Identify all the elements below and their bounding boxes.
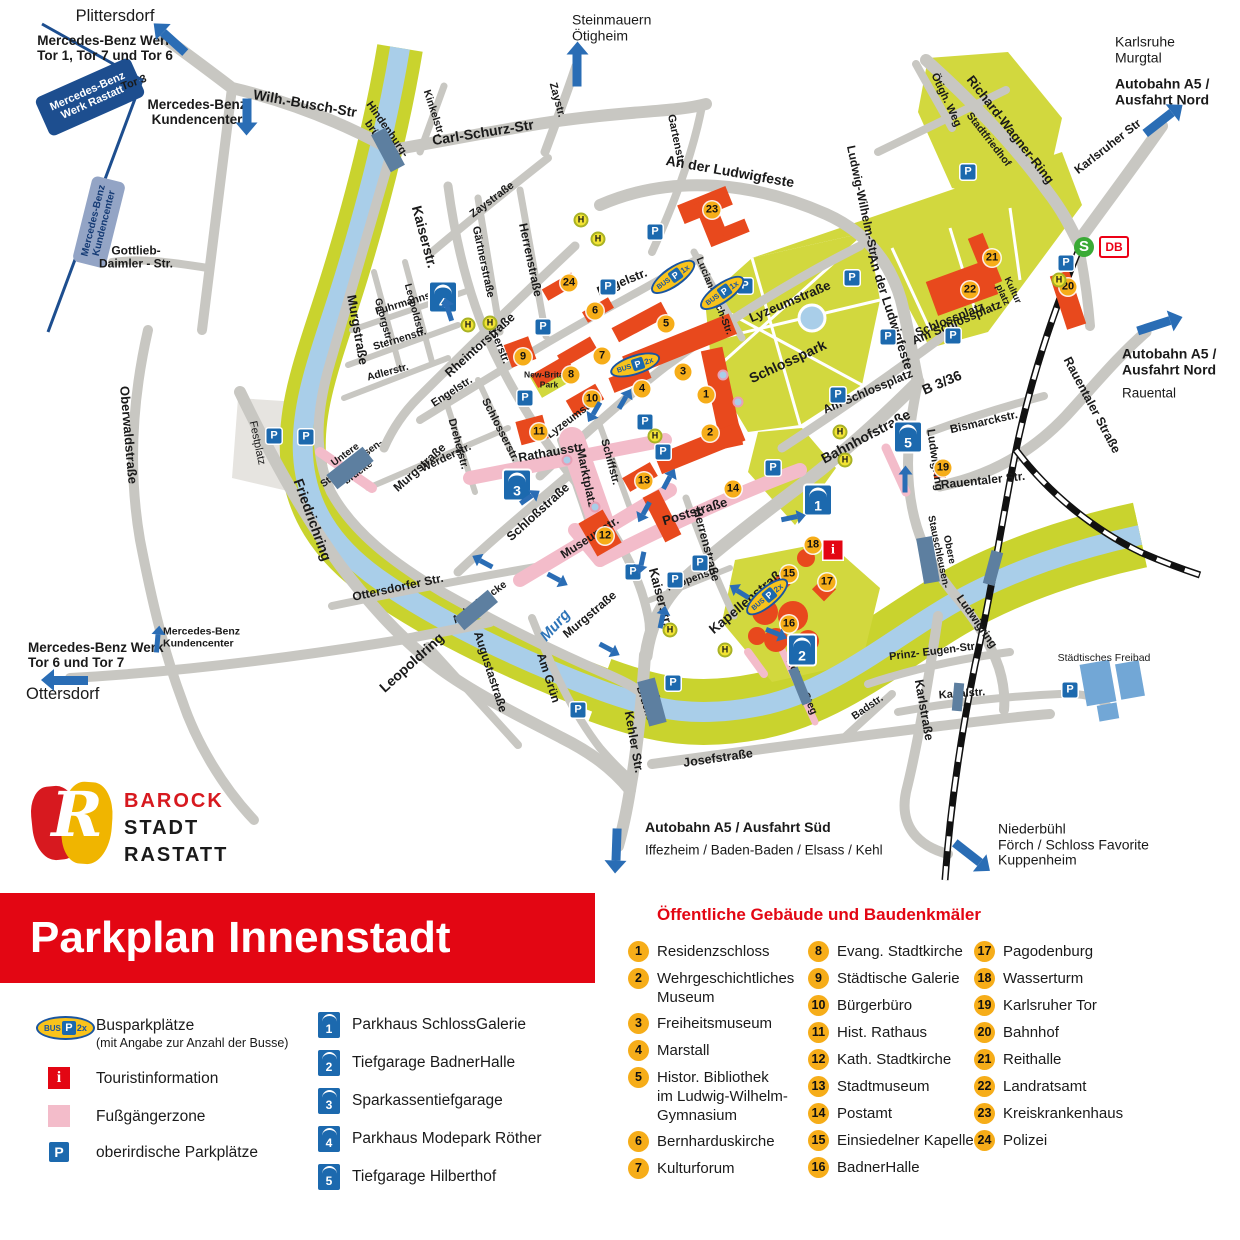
- building-label: Bahnhof: [1003, 1022, 1059, 1042]
- surface-parking-icon: P: [49, 1142, 69, 1162]
- rastatt-emblem-icon: R: [32, 782, 114, 864]
- parkhaus-legend-list: 1Parkhaus SchlossGalerie2Tiefgarage Badn…: [318, 1008, 542, 1198]
- bus-stop-icon: H: [838, 453, 853, 468]
- building-legend-item: 24Polizei: [974, 1130, 1184, 1151]
- building-number-badge: 2: [628, 968, 649, 989]
- bus-stop-icon: H: [461, 318, 476, 333]
- legend-parking-label: oberirdische Parkplätze: [96, 1144, 258, 1162]
- parking-icon: P: [946, 329, 961, 344]
- pedestrian-zone-swatch: [48, 1105, 70, 1127]
- street-label: Gärtnerstraße: [469, 225, 496, 299]
- parkhaus-marker: 5: [895, 423, 921, 452]
- building-number-badge: 3: [628, 1013, 649, 1034]
- building-label: Wasserturm: [1003, 968, 1083, 988]
- bus-stop-icon: H: [591, 232, 606, 247]
- building-label: Marstall: [657, 1040, 710, 1060]
- building-label: Bürgerbüro: [837, 995, 912, 1015]
- street-label: Kaiserstr.: [408, 204, 440, 270]
- building-legend-item: 13Stadtmuseum: [808, 1076, 978, 1097]
- page-title: Parkplan Innenstadt: [0, 893, 595, 983]
- direction-arrow: [641, 500, 652, 515]
- bus-text: BUS: [616, 363, 632, 374]
- poi-badge: 9: [515, 349, 532, 366]
- building-number-badge: 11: [808, 1022, 829, 1043]
- parking-icon: P: [1059, 256, 1074, 271]
- bus-stop-icon: H: [483, 316, 498, 331]
- street-label: B 3/36: [920, 368, 964, 399]
- street-label: Karlsruher Str: [1072, 117, 1144, 177]
- direction-arrow: [639, 551, 647, 566]
- building-number-badge: 21: [974, 1049, 995, 1070]
- title-bar: Parkplan Innenstadt: [0, 893, 595, 983]
- building-legend-item: 5Histor. Bibliothek im Ludwig-Wilhelm- G…: [628, 1067, 833, 1125]
- street-label: Zaystr.: [546, 81, 567, 118]
- parkhaus-icon: 5: [318, 1164, 340, 1190]
- direction-arrow: [765, 626, 780, 636]
- legend-info-label: Touristinformation: [96, 1070, 218, 1088]
- building-legend-item: 7Kulturforum: [628, 1158, 833, 1179]
- building-label: Bernharduskirche: [657, 1131, 775, 1151]
- building-label: Kulturforum: [657, 1158, 735, 1178]
- destination-label: Rauental: [1122, 385, 1176, 400]
- barock-stadt-rastatt-logo: R BAROCK STADT RASTATT: [32, 782, 312, 874]
- parking-icon: P: [267, 429, 282, 444]
- building-number-badge: 18: [974, 968, 995, 989]
- parkhaus-number: 5: [326, 1174, 333, 1188]
- legend-ped-label: Fußgängerzone: [96, 1108, 205, 1126]
- db-logo: DB: [1099, 236, 1129, 258]
- building-number-badge: 13: [808, 1076, 829, 1097]
- bus-parking-icon: BUS P 2x: [36, 1016, 95, 1040]
- destination-label: Karlsruhe Murgtal: [1115, 34, 1175, 65]
- street-label: Zaystraße: [468, 179, 517, 220]
- count-text: 2x: [643, 355, 654, 366]
- parking-icon: P: [766, 461, 781, 476]
- logo-line-barock: BAROCK: [124, 790, 224, 813]
- poi-badge: 7: [594, 348, 611, 365]
- parkhaus-number: 3: [326, 1098, 333, 1112]
- parkhaus-number: 4: [326, 1136, 333, 1150]
- street-label: Prinz- Eugen-Str: [888, 641, 975, 664]
- poi-badge: 1: [698, 387, 715, 404]
- building-legend-item: 14Postamt: [808, 1103, 978, 1124]
- building-number-badge: 15: [808, 1130, 829, 1151]
- buildings-column-1: 1Residenzschloss2Wehrgeschichtliches Mus…: [628, 941, 833, 1185]
- parkhaus-roof-icon: [899, 425, 917, 435]
- city-map: Mercedes-Benz Werk Rastatt Mercedes-Benz…: [0, 0, 1240, 890]
- parkhaus-roof-icon: [434, 285, 452, 295]
- bus-stop-icon: H: [833, 425, 848, 440]
- logo-line-rastatt: RASTATT: [124, 844, 228, 867]
- street-label: Augustastraße: [471, 630, 510, 714]
- parking-icon: P: [666, 676, 681, 691]
- parkhaus-label: Parkhaus SchlossGalerie: [352, 1016, 526, 1034]
- building-legend-item: 15Einsiedelner Kapelle: [808, 1130, 978, 1151]
- poi-badge: 24: [561, 275, 578, 292]
- poi-badge: 13: [636, 473, 653, 490]
- building-legend-item: 19Karlsruher Tor: [974, 995, 1184, 1016]
- parkhaus-label: Tiefgarage Hilberthof: [352, 1168, 496, 1186]
- destination-label: Plittersdorf: [76, 7, 155, 25]
- building-number-badge: 10: [808, 995, 829, 1016]
- street-label: Ludwig-Wilhelm-Str.: [843, 144, 880, 259]
- legend-bus-sublabel: (mit Angabe zur Anzahl der Busse): [96, 1036, 288, 1050]
- parking-icon: P: [648, 225, 663, 240]
- building-number-badge: 22: [974, 1076, 995, 1097]
- building-legend-item: 18Wasserturm: [974, 968, 1184, 989]
- building-legend-item: 1Residenzschloss: [628, 941, 833, 962]
- destination-label: Iffezheim / Baden-Baden / Elsass / Kehl: [645, 842, 883, 857]
- building-number-badge: 20: [974, 1022, 995, 1043]
- building-label: Karlsruher Tor: [1003, 995, 1097, 1015]
- parkhaus-label: Sparkassentiefgarage: [352, 1092, 503, 1110]
- building-legend-item: 3Freiheitsmuseum: [628, 1013, 833, 1034]
- building-label: Postamt: [837, 1103, 892, 1123]
- direction-arrow: [573, 54, 582, 86]
- street-label: Am Grün: [534, 652, 563, 705]
- building-legend-item: 12Kath. Stadtkirche: [808, 1049, 978, 1070]
- destination-label: Autobahn A5 / Ausfahrt Süd: [645, 820, 831, 836]
- street-label: Lyzeumstraße: [747, 278, 833, 325]
- poi-badge: 14: [725, 481, 742, 498]
- poi-badge: 12: [597, 528, 614, 545]
- street-label: Rauentaler Straße: [1061, 354, 1124, 455]
- parkhaus-roof-icon: [322, 1052, 337, 1060]
- street-label: An der Ludwigfeste: [665, 153, 796, 191]
- street-label: Ottersdorfer Str.: [351, 572, 444, 604]
- parkhaus-roof-icon: [322, 1090, 337, 1098]
- building-label: Polizei: [1003, 1130, 1047, 1150]
- building-legend-item: 17Pagodenburg: [974, 941, 1184, 962]
- street-label: Marktplatz: [573, 448, 598, 509]
- bus-oval-bus-text: BUS: [44, 1024, 61, 1033]
- parking-icon: P: [831, 388, 846, 403]
- parking-icon: P: [693, 556, 708, 571]
- direction-arrow: [598, 641, 613, 652]
- bus-parking-icon: BUSP2x: [607, 348, 662, 383]
- destination-label: Niederbühl Förch / Schloss Favorite Kupp…: [998, 821, 1149, 868]
- building-label: Residenzschloss: [657, 941, 770, 961]
- poi-badge: 19: [935, 460, 952, 477]
- street-label: Leopoldring: [377, 630, 448, 696]
- bus-stop-icon: H: [574, 213, 589, 228]
- bus-text: BUS: [656, 276, 672, 290]
- building-legend-item: 2Wehrgeschichtliches Museum: [628, 968, 833, 1007]
- destination-label: Autobahn A5 / Ausfahrt Nord: [1115, 76, 1209, 107]
- direction-arrow: [546, 571, 561, 582]
- parkhaus-icon: 1: [318, 1012, 340, 1038]
- building-legend-item: 22Landratsamt: [974, 1076, 1184, 1097]
- destination-label: Mercedes-Benz Kundencenter: [147, 97, 246, 127]
- parkhaus-number: 5: [904, 435, 912, 451]
- poi-badge: 23: [704, 202, 721, 219]
- parkhaus-number: 3: [513, 483, 521, 499]
- building-number-badge: 5: [628, 1067, 649, 1088]
- area-label: Schlosspark: [747, 337, 829, 386]
- bus-oval-count-text: 2x: [77, 1023, 87, 1033]
- poi-badge: 21: [984, 250, 1001, 267]
- parkhaus-icon: 4: [318, 1126, 340, 1152]
- parkhaus-roof-icon: [793, 638, 811, 648]
- building-label: Einsiedelner Kapelle: [837, 1130, 974, 1150]
- bus-stop-icon: H: [663, 623, 678, 638]
- fountain-dot: [590, 502, 601, 513]
- street-label: Kinkelstr.: [420, 89, 446, 138]
- bus-stop-icon: H: [1052, 273, 1067, 288]
- bus-oval-p-icon: P: [62, 1021, 76, 1035]
- parking-icon: P: [638, 415, 653, 430]
- building-legend-item: 21Reithalle: [974, 1049, 1184, 1070]
- direction-arrow: [1136, 316, 1171, 335]
- street-label: Ötigh. Weg: [928, 71, 964, 129]
- parkhaus-roof-icon: [322, 1166, 337, 1174]
- map-overlay: Mercedes-Benz Werk Rastatt Mercedes-Benz…: [0, 0, 1240, 890]
- poi-badge: 18: [805, 537, 822, 554]
- bus-text: BUS: [705, 292, 721, 306]
- street-label: Schlosserstr.: [479, 396, 521, 463]
- mercedes-werk-box: Mercedes-Benz Werk Rastatt: [34, 57, 146, 138]
- bus-text: BUS: [750, 597, 766, 612]
- parkhaus-number: 2: [326, 1060, 333, 1074]
- street-label: Karlstraße: [912, 678, 937, 741]
- buildings-column-2: 8Evang. Stadtkirche9Städtische Galerie10…: [808, 941, 978, 1184]
- building-number-badge: 23: [974, 1103, 995, 1124]
- building-legend-item: 16BadnerHalle: [808, 1157, 978, 1178]
- fountain-dot: [718, 370, 729, 381]
- building-number-badge: 4: [628, 1040, 649, 1061]
- poi-badge: 22: [962, 282, 979, 299]
- street-label: Bismarckstr.: [949, 409, 1019, 437]
- parkhaus-roof-icon: [322, 1014, 337, 1022]
- building-number-badge: 16: [808, 1157, 829, 1178]
- building-number-badge: 17: [974, 941, 995, 962]
- building-number-badge: 6: [628, 1131, 649, 1152]
- buildings-legend-title: Öffentliche Gebäude und Baudenkmäler: [657, 905, 981, 925]
- bridge: [983, 550, 1003, 586]
- building-number-badge: 7: [628, 1158, 649, 1179]
- building-number-badge: 14: [808, 1103, 829, 1124]
- building-label: Evang. Stadtkirche: [837, 941, 963, 961]
- building-number-badge: 24: [974, 1130, 995, 1151]
- poi-badge: 4: [634, 381, 651, 398]
- building-label: Wehrgeschichtliches Museum: [657, 968, 794, 1007]
- building-number-badge: 1: [628, 941, 649, 962]
- direction-arrow: [903, 474, 908, 492]
- parkhaus-legend-item: 1Parkhaus SchlossGalerie: [318, 1008, 542, 1041]
- parking-icon: P: [1063, 683, 1078, 698]
- parking-icon: P: [299, 430, 314, 445]
- building-label: Landratsamt: [1003, 1076, 1086, 1096]
- destination-label: Ottersdorf: [26, 685, 99, 703]
- parkplan-poster: Mercedes-Benz Werk Rastatt Mercedes-Benz…: [0, 0, 1240, 1240]
- building-legend-item: 6Bernharduskirche: [628, 1131, 833, 1152]
- destination-label: Autobahn A5 / Ausfahrt Nord: [1122, 346, 1216, 377]
- area-label: Festplatz: [246, 420, 267, 466]
- building-label: Reithalle: [1003, 1049, 1061, 1069]
- building-number-badge: 12: [808, 1049, 829, 1070]
- street-label: Wilh.-Busch-Str: [252, 87, 358, 121]
- direction-arrow: [661, 475, 672, 490]
- poi-badge: 11: [531, 424, 548, 441]
- parkhaus-label: Tiefgarage BadnerHalle: [352, 1054, 515, 1072]
- bus-stop-icon: H: [718, 643, 733, 658]
- street-label: Murgstraße: [344, 294, 371, 366]
- building-label: Histor. Bibliothek im Ludwig-Wilhelm- Gy…: [657, 1067, 788, 1125]
- street-label: An der Ludwigfeste: [864, 252, 915, 371]
- parking-icon: P: [668, 573, 683, 588]
- building-number-badge: 8: [808, 941, 829, 962]
- parking-icon: P: [881, 330, 896, 345]
- parking-icon: P: [601, 280, 616, 295]
- parking-icon: P: [518, 391, 533, 406]
- parkhaus-roof-icon: [322, 1128, 337, 1136]
- destination-label: Städtisches Freibad: [1058, 653, 1151, 665]
- parkhaus-marker: 2: [789, 636, 815, 665]
- building-label: Freiheitsmuseum: [657, 1013, 772, 1033]
- building-legend-item: 11Hist. Rathaus: [808, 1022, 978, 1043]
- parking-icon: P: [536, 320, 551, 335]
- poi-badge: 2: [702, 425, 719, 442]
- building-label: Hist. Rathaus: [837, 1022, 927, 1042]
- direction-arrow: [612, 828, 622, 860]
- logo-line-stadt: STADT: [124, 817, 199, 840]
- direction-arrow: [952, 839, 983, 866]
- bus-parking-icon: BUSP1x: [646, 254, 700, 300]
- building-legend-item: 9Städtische Galerie: [808, 968, 978, 989]
- direction-arrow: [781, 514, 798, 522]
- parkhaus-roof-icon: [809, 488, 827, 498]
- parking-icon: P: [961, 165, 976, 180]
- fountain-dot: [562, 455, 573, 466]
- parkhaus-legend-item: 3Sparkassentiefgarage: [318, 1084, 542, 1117]
- parkhaus-number: 2: [798, 648, 806, 664]
- street-label: Rauentaler Str.: [940, 470, 1026, 492]
- building-label: Stadtmuseum: [837, 1076, 930, 1096]
- buildings-column-3: 17Pagodenburg18Wasserturm19Karlsruher To…: [974, 941, 1184, 1157]
- parkhaus-roof-icon: [508, 473, 526, 483]
- tourist-info-icon: i: [824, 541, 843, 560]
- building-legend-item: 20Bahnhof: [974, 1022, 1184, 1043]
- building-legend-item: 4Marstall: [628, 1040, 833, 1061]
- parkhaus-number: 1: [814, 498, 822, 514]
- legend-bus-label: Busparkplätze: [96, 1017, 194, 1035]
- building-label: Städtische Galerie: [837, 968, 960, 988]
- street-label: Schiffstr.: [598, 438, 622, 487]
- direction-arrow: [479, 558, 494, 569]
- street-label: Oberwaldstraße: [116, 385, 139, 484]
- poi-badge: 17: [819, 574, 836, 591]
- bus-stop-icon: H: [648, 429, 663, 444]
- building-label: Pagodenburg: [1003, 941, 1093, 961]
- building-legend-item: 23Kreiskrankenhaus: [974, 1103, 1184, 1124]
- direction-arrow: [54, 676, 88, 685]
- street-label: Herrenstraße: [516, 222, 545, 298]
- building-legend-item: 10Bürgerbüro: [808, 995, 978, 1016]
- parkhaus-number: 1: [326, 1022, 333, 1036]
- building-label: BadnerHalle: [837, 1157, 920, 1177]
- poi-badge: 5: [658, 316, 675, 333]
- parkhaus-legend-item: 2Tiefgarage BadnerHalle: [318, 1046, 542, 1079]
- street-label: Josefstraße: [682, 746, 753, 770]
- parking-icon: P: [845, 271, 860, 286]
- street-label: Gottlieb- Daimler - Str.: [99, 245, 173, 272]
- tourist-info-icon: i: [48, 1067, 70, 1089]
- destination-label: Steinmauern Ötigheim: [572, 12, 651, 43]
- parkhaus-label: Parkhaus Modepark Röther: [352, 1130, 542, 1148]
- parkhaus-legend-item: 5Tiefgarage Hilberthof: [318, 1160, 542, 1193]
- fountain-dot: [733, 397, 744, 408]
- parking-icon: P: [656, 445, 671, 460]
- building-label: Kreiskrankenhaus: [1003, 1103, 1123, 1123]
- parkhaus-icon: 2: [318, 1050, 340, 1076]
- destination-label: Mercedes-Benz Werk Tor 6 und Tor 7: [28, 640, 164, 670]
- poi-badge: 3: [675, 364, 692, 381]
- poi-badge: 8: [563, 367, 580, 384]
- parkhaus-icon: 3: [318, 1088, 340, 1114]
- poi-badge: 6: [587, 303, 604, 320]
- street-label: Badstr.: [850, 693, 886, 723]
- parking-icon: P: [571, 703, 586, 718]
- destination-label: Mercedes-Benz Kundencenter: [163, 626, 240, 650]
- street-label: Adlerstr.: [366, 362, 410, 384]
- parkhaus-legend-item: 4Parkhaus Modepark Röther: [318, 1122, 542, 1155]
- building-number-badge: 9: [808, 968, 829, 989]
- sbahn-logo: S: [1074, 237, 1094, 257]
- building-number-badge: 19: [974, 995, 995, 1016]
- direction-arrow: [243, 98, 252, 122]
- direction-arrow: [1142, 108, 1174, 136]
- street-label: Rheintorstraße: [442, 310, 517, 380]
- building-legend-item: 8Evang. Stadtkirche: [808, 941, 978, 962]
- building-label: Kath. Stadtkirche: [837, 1049, 951, 1069]
- direction-arrow: [617, 395, 628, 410]
- parkhaus-marker: 1: [805, 486, 831, 515]
- bridge: [952, 683, 964, 712]
